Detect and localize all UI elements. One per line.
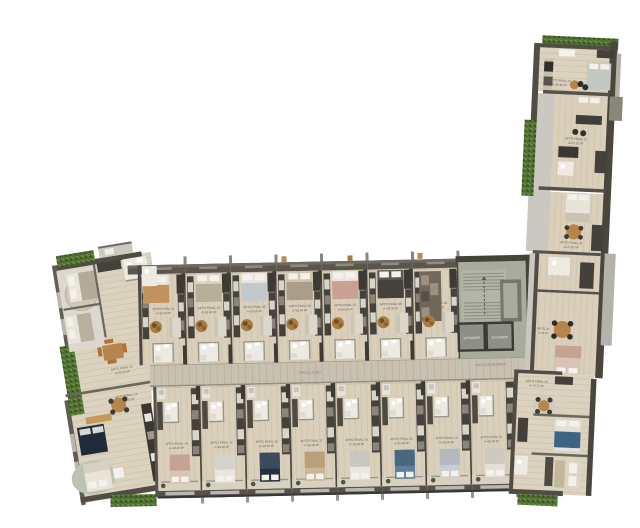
svg-text:HALL ELEVADORES: HALL ELEVADORES <box>476 362 506 367</box>
svg-text:A=28,08 M²: A=28,08 M² <box>439 440 454 444</box>
svg-text:A=70,37 M²: A=70,37 M² <box>529 383 544 388</box>
svg-text:A=28,08 M²: A=28,08 M² <box>247 309 262 313</box>
svg-text:A=28,08 M²: A=28,08 M² <box>169 446 184 450</box>
svg-text:A=28,08 M²: A=28,08 M² <box>156 311 171 315</box>
svg-text:ELEVADOR: ELEVADOR <box>492 335 509 339</box>
svg-text:A=36 M²: A=36 M² <box>538 331 549 335</box>
svg-text:A=28,08 M²: A=28,08 M² <box>484 439 499 443</box>
svg-text:A=28,08 M²: A=28,08 M² <box>201 310 216 314</box>
svg-text:A=28,08 M²: A=28,08 M² <box>259 444 274 448</box>
svg-text:A=28,08 M²: A=28,08 M² <box>349 442 364 446</box>
svg-text:A=28,08 M²: A=28,08 M² <box>394 441 409 445</box>
svg-text:A=28,08 M²: A=28,08 M² <box>292 308 307 312</box>
svg-text:A=28,08 M²: A=28,08 M² <box>429 305 444 309</box>
svg-text:A=27,01 M²: A=27,01 M² <box>568 141 583 146</box>
svg-text:A=27,01 M²: A=27,01 M² <box>563 245 578 250</box>
svg-text:A=28,08 M²: A=28,08 M² <box>214 445 229 449</box>
svg-text:A=28,08 M²: A=28,08 M² <box>383 306 398 310</box>
svg-text:A=36,39 M²: A=36,39 M² <box>552 83 567 88</box>
svg-text:ELEVADOR: ELEVADOR <box>464 336 481 340</box>
svg-text:A=28,08 M²: A=28,08 M² <box>338 307 353 311</box>
svg-text:A=28,08 M²: A=28,08 M² <box>304 443 319 447</box>
svg-text:APTO 31: APTO 31 <box>537 326 549 331</box>
svg-text:CIRCULAÇÃO: CIRCULAÇÃO <box>299 369 321 374</box>
